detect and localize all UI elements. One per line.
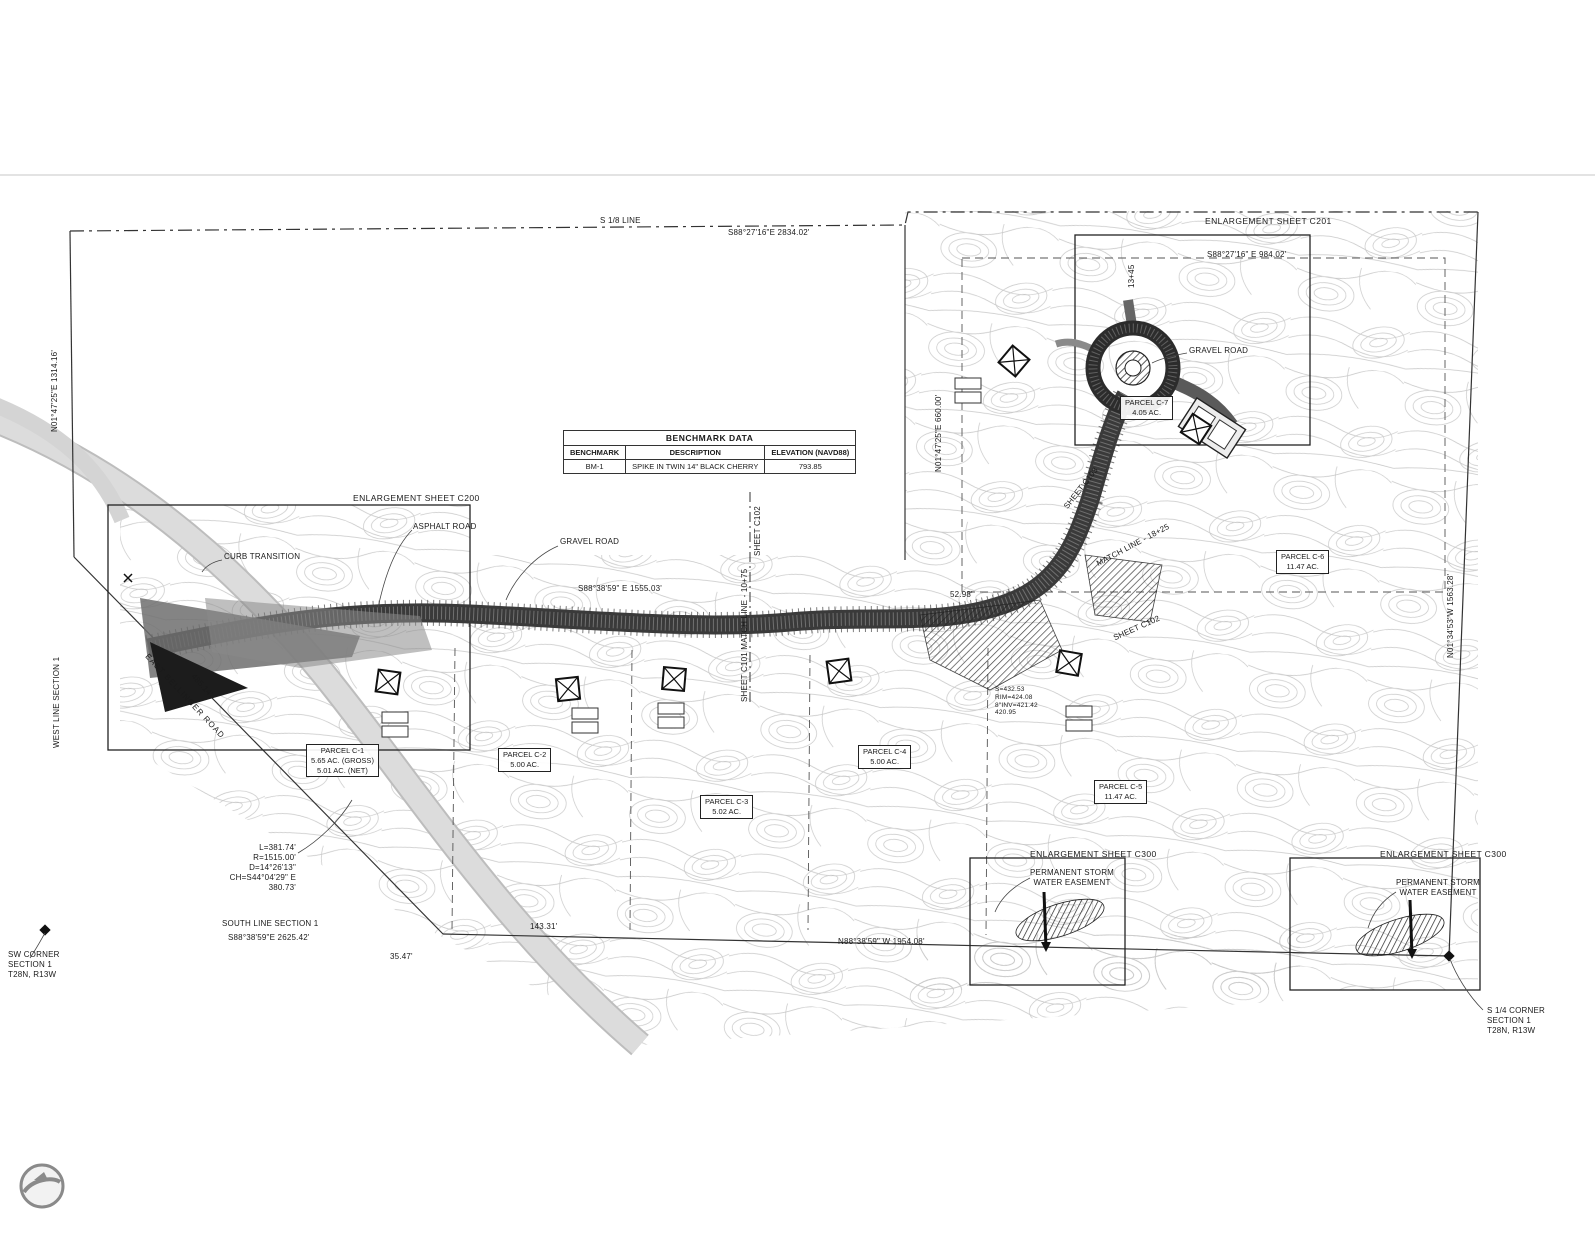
parcel-c7-area: 4.05 AC. [1125, 408, 1168, 418]
dim-52-label: 52.98' [950, 590, 973, 600]
parcel-c5-name: PARCEL C-5 [1099, 782, 1142, 792]
benchmark-description-cell: SPIKE IN TWIN 14" BLACK CHERRY [626, 460, 765, 474]
east-bearing-label: N01°34'53"W 1563.28' [1446, 574, 1456, 658]
parcel-c1-area-gross: 5.65 AC. (GROSS) [311, 756, 374, 766]
gravel-road-center-label: GRAVEL ROAD [560, 537, 619, 547]
c101-matchline-label: SHEET C101 MATCH LINE - 10+75 [740, 569, 750, 702]
parcel-c3-box: PARCEL C-3 5.02 AC. [700, 795, 753, 819]
site-plan-drawing [0, 0, 1595, 1233]
parcel-c2-box: PARCEL C-2 5.00 AC. [498, 748, 551, 772]
benchmark-table: BENCHMARK DATA BENCHMARK DESCRIPTION ELE… [563, 430, 856, 474]
parcel-c4-box: PARCEL C-4 5.00 AC. [858, 745, 911, 769]
parcel-c5-area: 11.47 AC. [1099, 792, 1142, 802]
parcel-c4-name: PARCEL C-4 [863, 747, 906, 757]
northeast-bearing-label: S88°27'16" E 984.02' [1207, 250, 1286, 260]
parcel-c6-name: PARCEL C-6 [1281, 552, 1324, 562]
curb-transition-label: CURB TRANSITION [224, 552, 300, 562]
s-quarter-corner-label: S 1/4 CORNER SECTION 1 T28N, R13W [1487, 1006, 1545, 1036]
s18-line-label: S 1/8 LINE [600, 216, 641, 226]
company-logo [21, 1165, 63, 1207]
parcel-c6-box: PARCEL C-6 11.47 AC. [1276, 550, 1329, 574]
parcel-c1-name: PARCEL C-1 [311, 746, 374, 756]
site-plan-sheet: S 1/8 LINE S88°27'16"E 2834.02' ENLARGEM… [0, 0, 1595, 1233]
west-line-label: WEST LINE SECTION 1 [52, 657, 62, 748]
benchmark-id-cell: BM-1 [564, 460, 626, 474]
curve-data-label: L=381.74' R=1515.00' D=14°26'13" CH=S44°… [178, 843, 296, 893]
south-line-label: SOUTH LINE SECTION 1 [222, 919, 318, 929]
interior-west-bearing-label: N01°47'25"E 660.00' [934, 395, 944, 472]
asphalt-road-label: ASPHALT ROAD [413, 522, 476, 532]
storm-structure-notes: S=432.53 RIM=424.08 8"INV=421.42 420.95 [995, 686, 1038, 717]
sheet-c102-vertical-label: SHEET C102 [753, 506, 763, 556]
benchmark-col-benchmark: BENCHMARK [564, 446, 626, 460]
parcel-c7-name: PARCEL C-7 [1125, 398, 1168, 408]
parcel-c1-box: PARCEL C-1 5.65 AC. (GROSS) 5.01 AC. (NE… [306, 744, 379, 777]
benchmark-col-elevation: ELEVATION (NAVD88) [765, 446, 856, 460]
parcel-c4-area: 5.00 AC. [863, 757, 906, 767]
sheet-c200-label: ENLARGEMENT SHEET C200 [353, 493, 480, 504]
parcel-c2-name: PARCEL C-2 [503, 750, 546, 760]
station-13-45-label: 13+45 [1127, 265, 1137, 288]
parcel-c5-box: PARCEL C-5 11.47 AC. [1094, 780, 1147, 804]
west-bearing-label: N01°47'25"E 1314.16' [50, 350, 60, 432]
sheet-c300-right-label: ENLARGEMENT SHEET C300 [1380, 849, 1507, 860]
benchmark-elevation-cell: 793.85 [765, 460, 856, 474]
south-bearing-label: S88°38'59"E 2625.42' [228, 933, 310, 943]
parcel-c3-area: 5.02 AC. [705, 807, 748, 817]
parcel-c7-box: PARCEL C-7 4.05 AC. [1120, 396, 1173, 420]
parcel-c6-area: 11.47 AC. [1281, 562, 1324, 572]
sheet-c201-label: ENLARGEMENT SHEET C201 [1205, 216, 1332, 227]
dim-35-label: 35.47' [390, 952, 413, 962]
benchmark-col-description: DESCRIPTION [626, 446, 765, 460]
parcel-c1-area-net: 5.01 AC. (NET) [311, 766, 374, 776]
parcel-c2-area: 5.00 AC. [503, 760, 546, 770]
south-bearing2-label: N88°38'59" W 1954.08' [838, 937, 925, 947]
dim-143-label: 143.31' [530, 922, 557, 932]
parcel-c3-name: PARCEL C-3 [705, 797, 748, 807]
benchmark-title: BENCHMARK DATA [564, 431, 856, 446]
gravel-road-ne-label: GRAVEL ROAD [1189, 346, 1248, 356]
storm-easement-right-label: PERMANENT STORM WATER EASEMENT [1396, 878, 1480, 898]
sw-corner-label: SW CORNER SECTION 1 T28N, R13W [8, 950, 60, 980]
road-bearing-label: S88°38'59" E 1555.03' [578, 584, 662, 594]
sheet-c300-left-label: ENLARGEMENT SHEET C300 [1030, 849, 1157, 860]
storm-easement-left-label: PERMANENT STORM WATER EASEMENT [1030, 868, 1114, 888]
north-bearing-label: S88°27'16"E 2834.02' [728, 228, 810, 238]
